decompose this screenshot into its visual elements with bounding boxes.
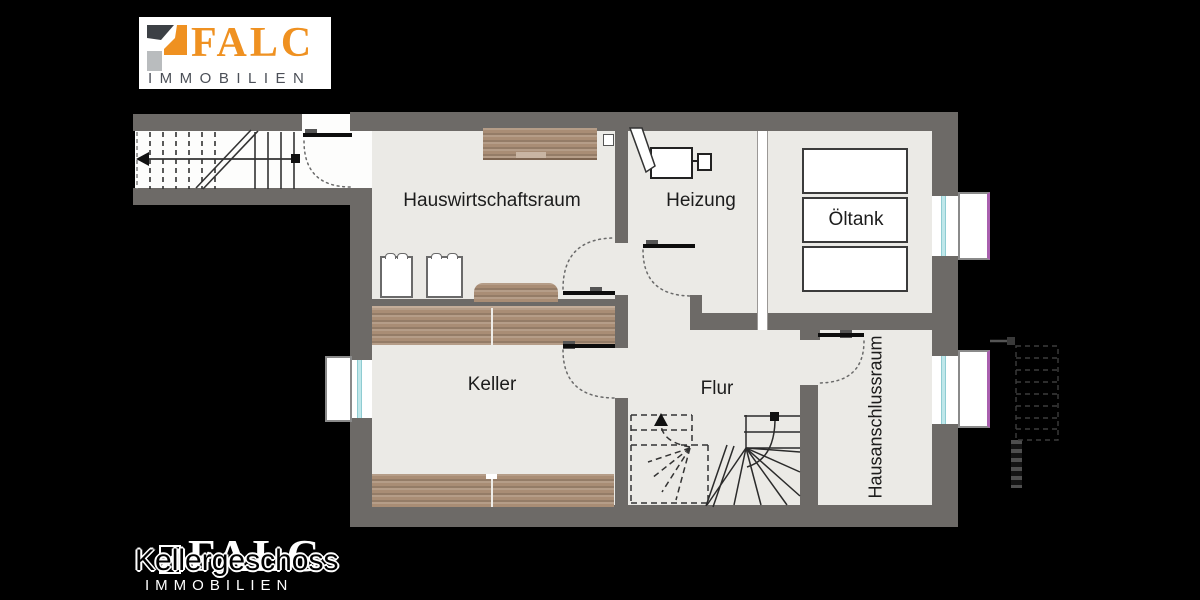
- dryer-icon: [426, 256, 463, 298]
- door-keller: [563, 344, 615, 348]
- annex-wall-south: [133, 188, 372, 205]
- room-label-keller: Keller: [468, 374, 517, 396]
- room-label-flur: Flur: [701, 378, 734, 400]
- counter-notch: [516, 152, 546, 158]
- partition-heizung-oeltank: [757, 131, 768, 330]
- logo-subtitle-text: IMMOBILIEN: [148, 70, 311, 87]
- door-annex: [303, 133, 352, 137]
- small-fixture: [603, 134, 614, 146]
- annex-doorway: [350, 131, 372, 190]
- wall-east-1: [932, 112, 958, 196]
- window-east-top-glass: [941, 196, 946, 256]
- boiler-expansion-tank-icon: [697, 153, 712, 171]
- room-label-hausanschlussraum: Hausanschlussraum: [866, 335, 887, 498]
- exterior-stair-faint: [1016, 346, 1058, 440]
- floor-plan-page: FALC IMMOBILIEN: [0, 0, 1200, 600]
- room-label-hauswirtschaftsraum: Hauswirtschaftsraum: [403, 190, 580, 212]
- footer-floor-caption: FALC IMMOBILIEN Kellergeschoss: [133, 536, 383, 598]
- wall-flur-west-mid: [615, 295, 628, 348]
- oil-tank-3: [802, 246, 908, 292]
- wall-east-2: [932, 256, 958, 356]
- boiler-icon: [650, 147, 693, 179]
- wall-south: [350, 505, 958, 527]
- exterior-stair-landing: [135, 131, 352, 190]
- wardrobe-notch: [486, 474, 497, 479]
- wall-north: [350, 112, 958, 131]
- wardrobe-keller-bottom: [372, 474, 614, 507]
- logo-brand-text: FALC: [191, 17, 314, 69]
- oil-tank-1: [802, 148, 908, 194]
- wall-east-3: [932, 424, 958, 505]
- room-label-oeltank: Öltank: [829, 209, 884, 231]
- wall-flur-har: [800, 385, 818, 505]
- wall-west-lower: [350, 418, 372, 505]
- footer-subtitle-text: IMMOBILIEN: [145, 577, 293, 594]
- door-hausanschlussraum: [818, 333, 864, 337]
- wall-har-jamb: [800, 313, 820, 340]
- window-west-glass: [357, 360, 362, 418]
- washing-machine-icon: [380, 256, 413, 298]
- exterior-shaft-hatch: [1011, 440, 1022, 488]
- wardrobe-keller-top: [372, 306, 615, 345]
- window-west-lightwell: [325, 356, 352, 422]
- window-east-bottom-glass: [941, 356, 946, 424]
- wall-heizung-stub: [690, 295, 702, 313]
- window-east-top-lightwell: [958, 192, 990, 260]
- door-heizung: [643, 244, 695, 248]
- cabinet-rounded: [474, 283, 558, 302]
- room-label-heizung: Heizung: [666, 190, 736, 212]
- floor-label: Kellergeschoss: [135, 544, 338, 578]
- falc-logo-icon: [147, 25, 187, 73]
- wall-flur-west-low: [615, 398, 628, 505]
- wall-west-upper: [350, 190, 372, 360]
- wardrobe-divider: [491, 308, 493, 345]
- falc-logo: FALC IMMOBILIEN: [139, 17, 331, 89]
- annex-wall-north: [133, 114, 302, 131]
- window-east-bottom-lightwell: [958, 350, 990, 428]
- wall-hwr-heizung: [615, 131, 628, 243]
- door-hauswirtschaftsraum: [563, 291, 615, 295]
